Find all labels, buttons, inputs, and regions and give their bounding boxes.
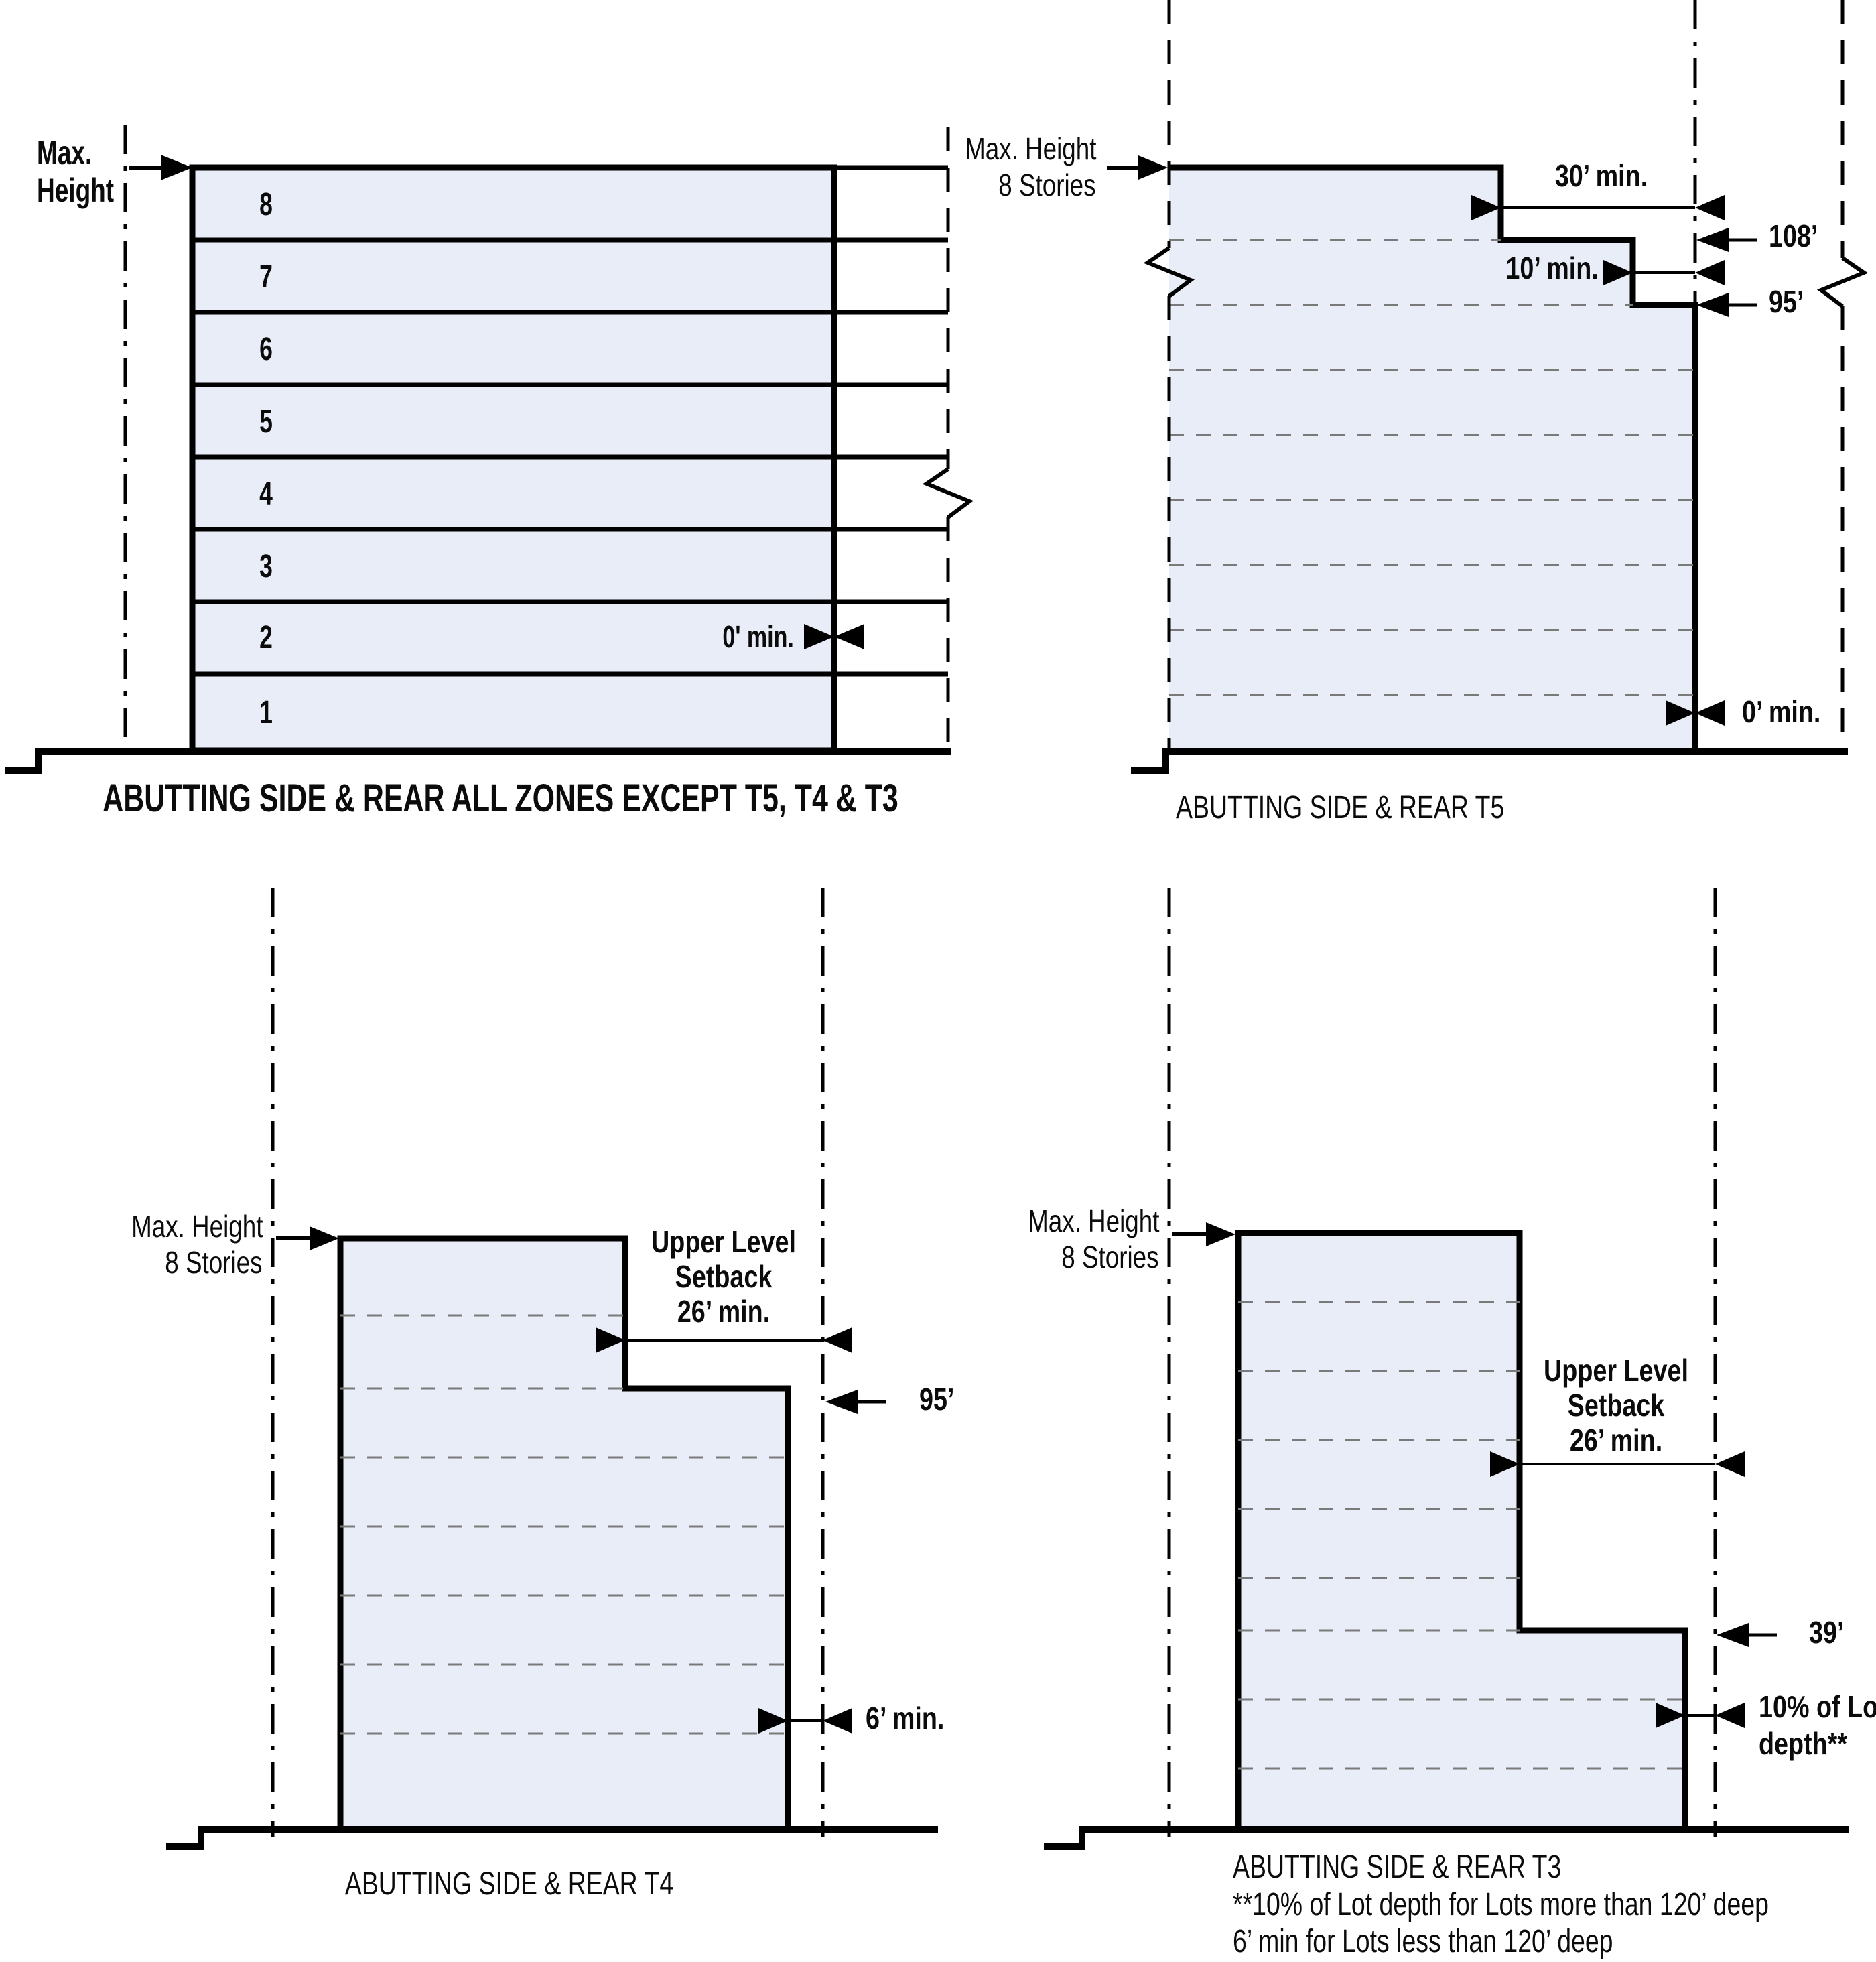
max-height-label-line1: Max. Height [1028,1205,1159,1236]
mid-setback-label: 10’ min. [1506,253,1599,283]
max-height-label-line1: Max. [37,136,92,170]
upper-setback-label-line1: Upper Level [1544,1355,1688,1386]
ground-setback-label-line2: depth** [1759,1728,1847,1759]
ground-line [166,1829,938,1847]
max-height-label-line1: Max. Height [131,1211,263,1242]
max-height-label-line2: 8 Stories [165,1247,263,1278]
max-height-label-line2: 8 Stories [1062,1242,1159,1272]
floor-number-2: 2 [259,622,273,654]
diagram-title-all-zones: ABUTTING SIDE & REAR ALL ZONES EXCEPT T5… [103,779,898,818]
upper-setback-dimension [1471,195,1725,220]
diagram-linework [0,0,1876,1962]
ground-setback-label: 0’ min. [1742,696,1820,727]
diagram-t3 [1044,888,1849,1847]
diagram-t4 [166,888,938,1847]
upper-setback-label-line3: 26’ min. [1570,1425,1662,1455]
footnote-line2: 6’ min for Lots less than 120’ deep [1233,1926,1613,1958]
ground-setback-label: 6’ min. [866,1703,944,1734]
max-height-arrow [276,1226,339,1250]
break-symbol [927,469,969,517]
ground-line [1044,1829,1849,1847]
building-section [1238,1233,1685,1829]
max-height-label-line2: Height [37,174,114,207]
floor-number-7: 7 [259,261,273,293]
max-height-arrow [1107,155,1168,180]
upper-setback-label-line2: Setback [1568,1390,1665,1421]
height-39-label: 39’ [1809,1617,1844,1648]
break-symbol [1821,258,1864,306]
diagram-title-t5: ABUTTING SIDE & REAR T5 [1176,792,1504,824]
floor-line-extensions [837,168,948,674]
floor-number-8: 8 [259,189,273,221]
upper-setback-label-line1: Upper Level [651,1226,796,1257]
footnote-line1: **10% of Lot depth for Lots more than 12… [1233,1889,1769,1921]
diagram-all-zones [5,125,969,771]
diagram-t5 [1107,0,1864,771]
height-39-arrow [1717,1623,1777,1647]
floor-number-6: 6 [259,334,273,366]
floor-number-4: 4 [259,478,273,511]
height-95-arrow [825,1390,886,1414]
max-height-label-line2: 8 Stories [999,170,1096,200]
zoning-setback-diagram-sheet: Max. Height 8 7 6 5 4 3 2 1 0' min. ABUT… [0,0,1876,1962]
height-95-label: 95’ [919,1384,954,1415]
side-setback-label: 0' min. [723,621,794,652]
max-height-arrow [129,155,192,180]
upper-setback-dimension [596,1327,852,1353]
diagram-title-t4: ABUTTING SIDE & REAR T4 [345,1868,673,1900]
max-height-arrow [1172,1222,1235,1246]
height-95-label: 95’ [1769,286,1804,317]
max-height-label-line1: Max. Height [965,133,1096,164]
upper-setback-label-line2: Setback [675,1261,773,1292]
ground-setback-label-line1: 10% of Lot [1759,1691,1876,1722]
height-95-arrow [1696,293,1757,317]
building-section [1169,168,1695,750]
floor-number-1: 1 [259,697,273,729]
ground-line [1131,752,1848,771]
diagram-title-t3: ABUTTING SIDE & REAR T3 [1233,1851,1561,1884]
floor-number-5: 5 [259,406,273,438]
floor-number-3: 3 [259,551,273,583]
height-108-label: 108’ [1769,220,1818,251]
upper-setback-label: 30’ min. [1555,160,1648,191]
ground-line [5,752,951,771]
height-108-arrow [1696,228,1757,252]
upper-setback-label-line3: 26’ min. [677,1296,770,1327]
